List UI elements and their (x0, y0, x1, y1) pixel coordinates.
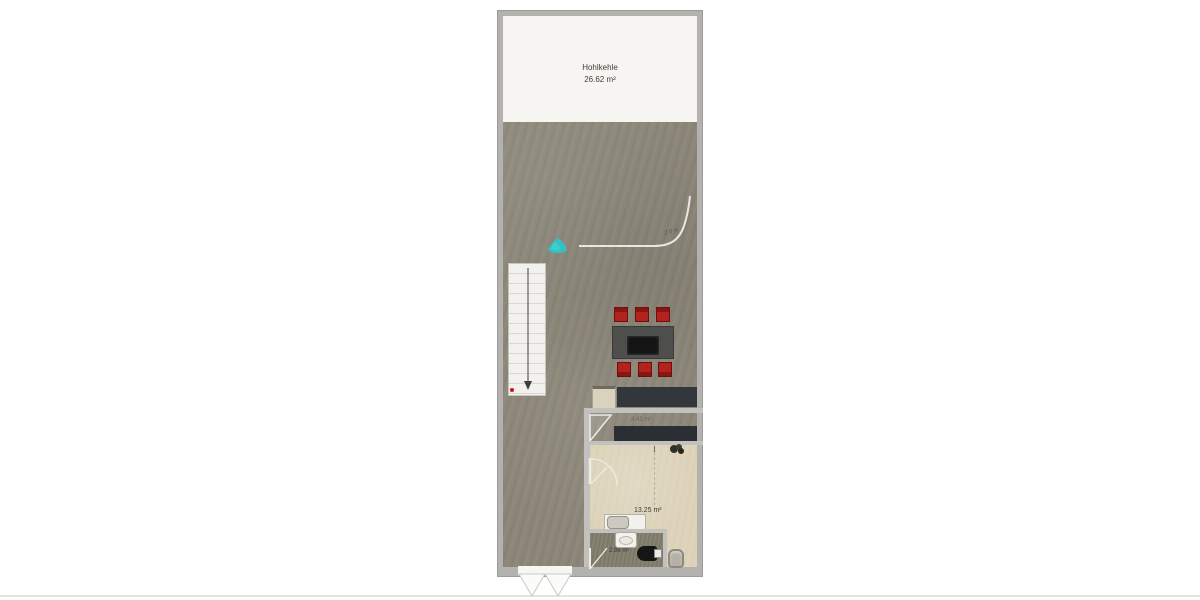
attic-room-label: Hohlkehle 26.62 m² (503, 62, 697, 86)
staircase (508, 263, 546, 396)
dining-chair (656, 307, 670, 322)
kitchen-counter-upper (617, 387, 697, 407)
kitchen-counter-lower (614, 426, 697, 441)
bathroom-door-swing (587, 544, 611, 572)
bathroom-area-label: 2.98 m² (609, 548, 629, 554)
sink-tap (654, 549, 662, 558)
sideboard-cabinet (592, 386, 616, 409)
washbasin (607, 516, 629, 529)
laundry-basket (668, 549, 684, 568)
dining-chair (635, 307, 649, 322)
attic-room-name: Hohlkehle (503, 62, 697, 74)
dining-chair (658, 362, 672, 377)
bedroom-area-label: 13.25 m² (634, 507, 662, 514)
kitchen-area-label: 4.43 m² (631, 417, 651, 423)
toilet-bowl (619, 536, 633, 545)
table-runner (627, 336, 659, 355)
floorplan-canvas: Hohlkehle 26.62 m² 2.0 m 4.43 m² (0, 0, 1200, 600)
plant-icon (669, 443, 685, 455)
dimension-dash-line (654, 452, 655, 510)
bedroom-door-swing (588, 455, 622, 489)
plant-teal-icon (545, 236, 571, 256)
stair-start-marker (510, 388, 514, 392)
kitchen-door-swing (587, 412, 615, 444)
stairs-direction-arrow (509, 264, 547, 395)
page-divider (0, 595, 1200, 597)
dining-chair (617, 362, 631, 377)
dining-chair (638, 362, 652, 377)
height-line (503, 190, 703, 260)
attic-room-area: 26.62 m² (503, 74, 697, 86)
wall (663, 529, 667, 567)
entrance-double-door-swing (515, 570, 575, 600)
dining-chair (614, 307, 628, 322)
